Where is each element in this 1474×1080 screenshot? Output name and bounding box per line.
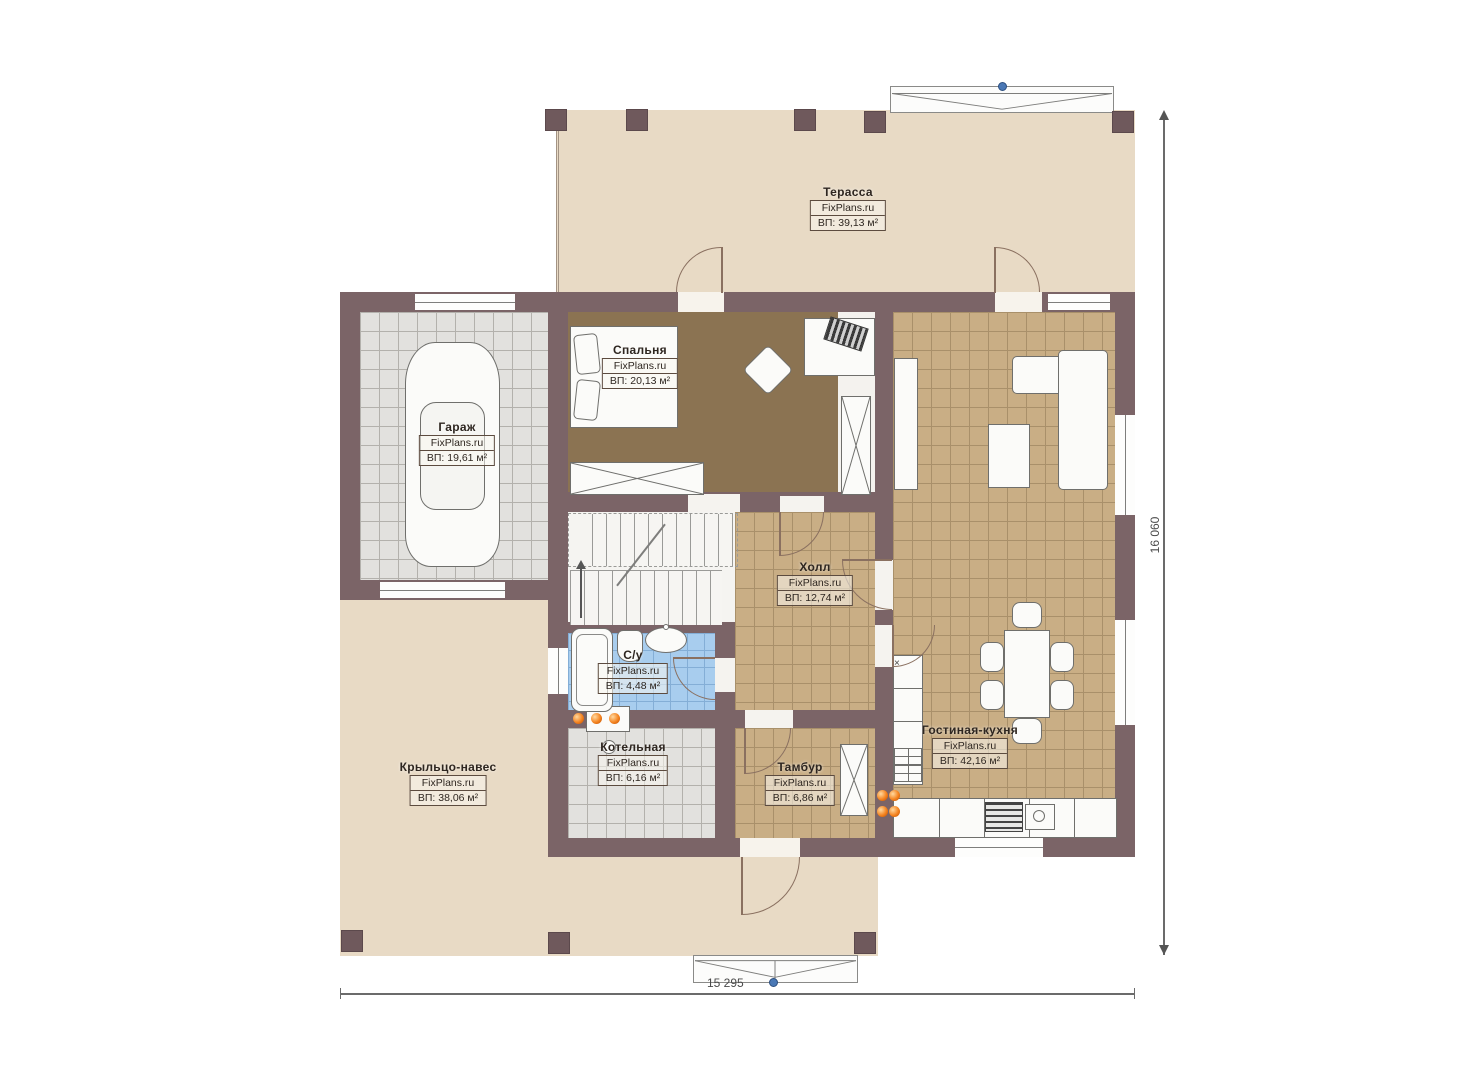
column-icon	[1112, 111, 1134, 133]
porch-floor-bottom	[548, 857, 878, 956]
bathroom-window	[548, 648, 568, 694]
garage-gate	[380, 582, 505, 598]
room-area: ВП: 42,16 м²	[933, 754, 1007, 768]
kitchen-cabinet-icon	[894, 765, 922, 782]
brand-watermark: FixPlans.ru	[411, 776, 485, 791]
column-icon	[626, 109, 648, 131]
dining-table-icon	[1004, 630, 1050, 718]
room-area: ВП: 19,61 м²	[420, 451, 494, 465]
column-icon	[341, 930, 363, 952]
kitchen-cross-mark: ×	[894, 658, 900, 669]
living-right-window-2	[1115, 620, 1135, 725]
pillow-icon	[573, 333, 601, 375]
column-icon	[794, 109, 816, 131]
stairs-arrow-head	[576, 560, 586, 569]
bedroom-terrace-door-gap	[678, 292, 724, 312]
room-area: ВП: 4,48 м²	[599, 679, 667, 693]
stove-burner-icon	[877, 806, 888, 817]
room-label-porch: Крыльцо-навес FixPlans.ruВП: 38,06 м²	[400, 760, 497, 806]
dimension-label-bottom: 15 295	[707, 976, 744, 990]
brand-watermark: FixPlans.ru	[933, 739, 1007, 754]
room-label-bedroom: Спальня FixPlans.ruВП: 20,13 м²	[602, 343, 678, 389]
room-label-tambour: Тамбур FixPlans.ruВП: 6,86 м²	[765, 760, 835, 806]
column-icon	[548, 932, 570, 954]
wardrobe-icon	[840, 744, 868, 816]
stove-burner-icon	[877, 790, 888, 801]
bedroom-hall-opening	[688, 494, 740, 512]
dimension-tick	[1134, 988, 1135, 999]
room-area: ВП: 39,13 м²	[811, 216, 885, 230]
kitchen-sink-bowl	[1033, 810, 1045, 822]
column-icon	[864, 111, 886, 133]
door-leaf	[721, 247, 723, 293]
garage-window	[415, 294, 515, 310]
living-terrace-door-gap	[995, 292, 1042, 312]
chair-icon	[980, 642, 1004, 672]
tv-stand-icon	[894, 358, 918, 490]
room-area: ВП: 20,13 м²	[603, 374, 677, 388]
tambour-door-gap	[745, 710, 793, 728]
door-leaf	[744, 728, 746, 774]
dimension-tick	[340, 988, 341, 999]
room-label-bathroom: С/у FixPlans.ruВП: 4,48 м²	[598, 648, 668, 694]
wardrobe-icon	[570, 462, 704, 495]
dimension-label-right: 16 060	[1148, 505, 1162, 565]
chair-icon	[1012, 602, 1042, 628]
room-area: ВП: 6,86 м²	[766, 791, 834, 805]
room-area: ВП: 12,74 м²	[778, 591, 852, 605]
door-leaf	[994, 247, 996, 293]
bedroom-hall-door-gap	[780, 496, 824, 512]
bathroom-door-gap	[715, 658, 735, 692]
brand-watermark: FixPlans.ru	[811, 201, 885, 216]
stove-burner-icon	[889, 806, 900, 817]
porch-steps-dot	[769, 978, 778, 987]
room-label-boiler: Котельная FixPlans.ruВП: 6,16 м²	[598, 740, 668, 786]
dimension-arrow-up	[1159, 110, 1169, 120]
column-icon	[854, 932, 876, 954]
chair-icon	[980, 680, 1004, 710]
oven-icon	[985, 802, 1023, 832]
terrace-steps-dot	[998, 82, 1007, 91]
stairs-lower-flight	[570, 570, 722, 625]
wardrobe-icon	[841, 396, 871, 495]
chair-icon	[1050, 680, 1074, 710]
kitchen-cabinet-icon	[894, 748, 922, 765]
pillow-icon	[573, 379, 601, 421]
brand-watermark: FixPlans.ru	[420, 436, 494, 451]
room-area: ВП: 38,06 м²	[411, 791, 485, 805]
brand-watermark: FixPlans.ru	[778, 576, 852, 591]
brand-watermark: FixPlans.ru	[766, 776, 834, 791]
dimension-arrow-down	[1159, 945, 1169, 955]
room-label-terrace: Терасса FixPlans.ruВП: 39,13 м²	[810, 185, 886, 231]
door-leaf	[673, 657, 715, 659]
dimension-line-bottom	[340, 993, 1135, 995]
living-top-window	[1048, 294, 1110, 310]
living-right-window-1	[1115, 415, 1135, 515]
brand-watermark: FixPlans.ru	[599, 664, 667, 679]
kitchen-bottom-window	[955, 838, 1043, 857]
brand-watermark: FixPlans.ru	[599, 756, 667, 771]
brand-watermark: FixPlans.ru	[603, 359, 677, 374]
sink-tap	[663, 624, 669, 630]
stove-burner-icon	[573, 713, 584, 724]
coffee-table-icon	[988, 424, 1030, 488]
chair-icon	[1050, 642, 1074, 672]
sofa-icon	[1058, 350, 1108, 490]
room-area: ВП: 6,16 м²	[599, 771, 667, 785]
stove-burner-icon	[889, 790, 900, 801]
door-leaf	[779, 512, 781, 556]
stove-burner-icon	[609, 713, 620, 724]
room-label-hall: Холл FixPlans.ruВП: 12,74 м²	[777, 560, 853, 606]
dimension-line-right	[1163, 113, 1165, 955]
stairs-upper-flight	[592, 514, 735, 566]
hall-kitchen-door-gap	[875, 625, 893, 667]
stove-burner-icon	[591, 713, 602, 724]
column-icon	[545, 109, 567, 131]
entrance-door-gap	[740, 838, 800, 857]
room-label-garage: Гараж FixPlans.ruВП: 19,61 м²	[419, 420, 495, 466]
entrance-door-leaf	[741, 857, 743, 915]
floor-plan-canvas: × Терасса FixPlans.ruВП: 39,13 м² Спальн…	[0, 0, 1474, 1080]
stairs-direction-arrow	[580, 566, 582, 618]
room-label-living-kitchen: Гостиная-кухня FixPlans.ruВП: 42,16 м²	[922, 723, 1018, 769]
